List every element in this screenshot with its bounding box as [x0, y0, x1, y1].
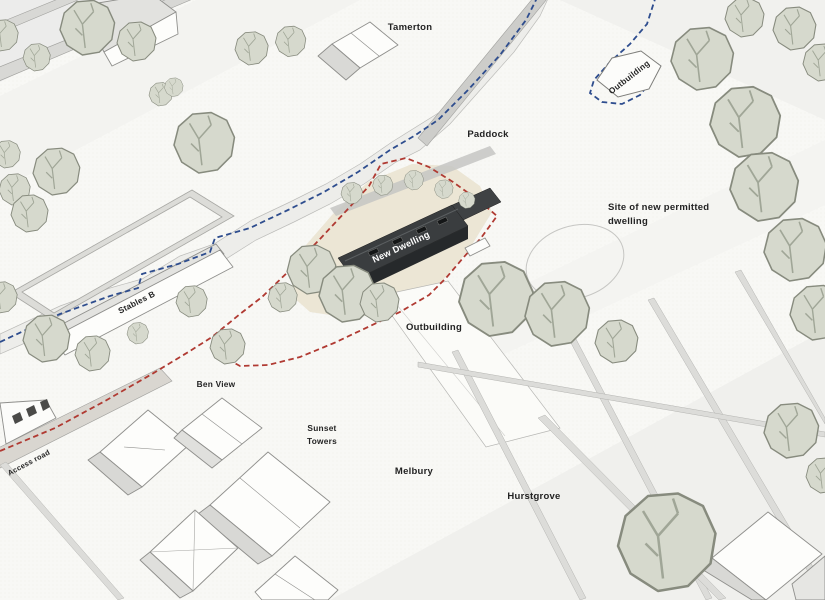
label-sunset-towers-2: Towers — [307, 436, 337, 446]
label-paddock: Paddock — [467, 129, 509, 140]
site-plan-canvas: Tamerton Outbuilding Paddock Site of new… — [0, 0, 825, 600]
label-site-note-1: Site of new permitted — [608, 202, 709, 213]
label-site-note-2: dwelling — [608, 216, 648, 227]
label-tamerton: Tamerton — [388, 22, 433, 33]
label-melbury: Melbury — [395, 466, 434, 477]
label-outbuilding-mid: Outbuilding — [406, 322, 462, 333]
label-ben-view: Ben View — [197, 379, 236, 389]
label-sunset-towers-1: Sunset — [307, 423, 336, 433]
label-hurstgrove: Hurstgrove — [507, 491, 560, 502]
